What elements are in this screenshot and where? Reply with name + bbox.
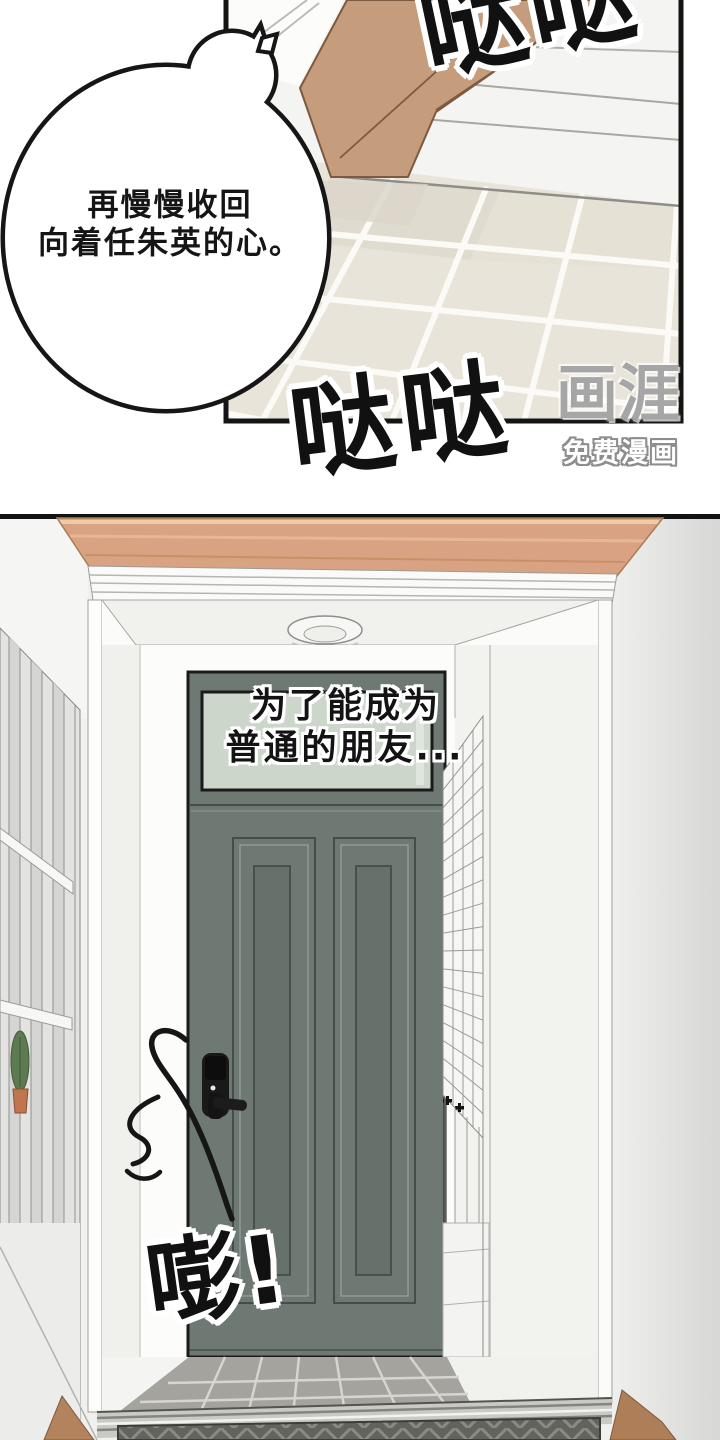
speech-bubble-line2: 向着任朱英的心。 xyxy=(38,218,302,263)
comic-page: 哒哒 再慢慢收回 向着任朱英的心。 哒哒 画涯 免费漫画 为了能成为 普通的朋友… xyxy=(0,0,720,1440)
sfx-door-bang: 嘭! xyxy=(137,1193,295,1347)
left-jamb xyxy=(88,600,102,1412)
watermark-tagline: 免费漫画 xyxy=(563,431,679,470)
bubble-spark-mark xyxy=(258,34,277,53)
watermark-logo: 画涯 xyxy=(556,362,680,426)
caption-line2: 普通的朋友... xyxy=(226,720,465,771)
panel2-scene-main xyxy=(0,505,720,1440)
right-jamb xyxy=(598,600,612,1403)
grid-cabinet xyxy=(443,716,489,1357)
potted-plant xyxy=(11,1031,29,1113)
right-wall xyxy=(612,519,720,1440)
sfx-footsteps-bottom: 哒哒 xyxy=(281,322,522,499)
